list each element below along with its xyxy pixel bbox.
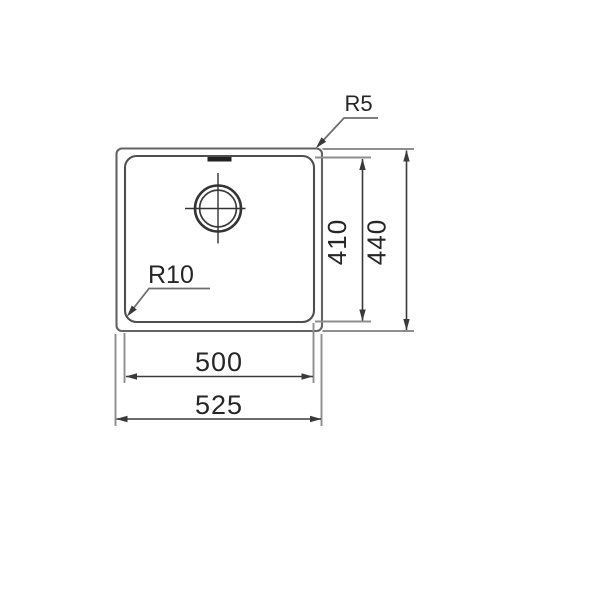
r5-leader-line xyxy=(318,118,379,147)
arrowhead-440-bottom xyxy=(403,319,409,331)
sink-top-view xyxy=(117,149,323,332)
arrowhead-410-bottom xyxy=(359,310,365,322)
arrowhead-410-top xyxy=(359,159,365,171)
dimension-label-525: 525 xyxy=(195,390,243,420)
r5-label: R5 xyxy=(345,91,373,116)
dimension-label-440: 440 xyxy=(362,219,392,265)
arrowhead-525-left xyxy=(116,416,128,422)
drain-symbol xyxy=(185,173,246,244)
dimension-label-410: 410 xyxy=(322,219,352,265)
r10-label: R10 xyxy=(148,261,194,289)
r10-leader-line xyxy=(129,289,210,315)
sink-technical-drawing: R5 R10 410 440 xyxy=(0,0,600,600)
arrowhead-525-right xyxy=(310,416,322,422)
dimension-label-500: 500 xyxy=(195,347,243,377)
drawing-svg: R5 R10 410 440 xyxy=(0,0,600,600)
radius-callout-r10: R10 xyxy=(125,261,210,319)
overflow-notch xyxy=(208,157,232,162)
arrowhead-500-left xyxy=(126,373,138,379)
radius-callout-r5: R5 xyxy=(314,91,378,150)
arrowhead-500-right xyxy=(302,373,314,379)
sink-bowl-outline xyxy=(125,156,314,322)
arrowhead-440-top xyxy=(403,150,409,162)
sink-outer-rim xyxy=(117,149,323,332)
